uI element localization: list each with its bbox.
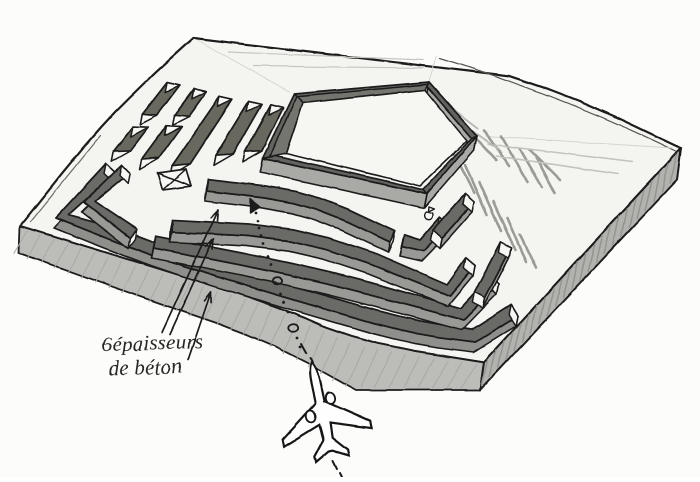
svg-text:de béton: de béton — [108, 354, 182, 381]
svg-text:6épaisseurs: 6épaisseurs — [101, 329, 203, 357]
